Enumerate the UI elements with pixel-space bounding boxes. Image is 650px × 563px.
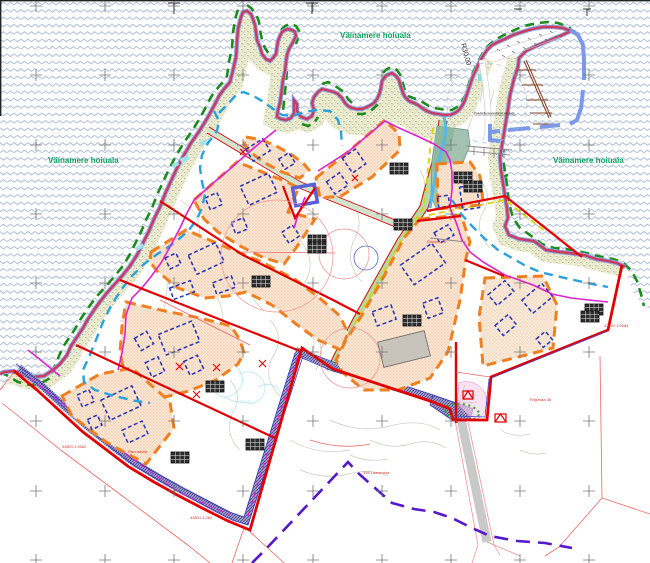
svg-text:Paadisilla kavandatav asukoht: Paadisilla kavandatav asukoht <box>474 111 515 115</box>
svg-text:43801:1:283: 43801:1:283 <box>190 515 213 520</box>
svg-text:Väinamere hoiuala: Väinamere hoiuala <box>48 156 119 165</box>
svg-text:Väinamere hoiuala: Väinamere hoiuala <box>553 156 624 165</box>
svg-text:398 Laaneotsa: 398 Laaneotsa <box>363 470 390 475</box>
svg-text:43801:1:0284: 43801:1:0284 <box>604 323 629 328</box>
svg-text:43801:1:0062: 43801:1:0062 <box>62 444 87 449</box>
svg-text:Väinamere hoiuala: Väinamere hoiuala <box>340 31 411 40</box>
svg-text:Rannaküla: Rannaküla <box>128 449 148 454</box>
svg-text:Riigimaa 38: Riigimaa 38 <box>530 397 552 402</box>
svg-text:Riigimaa 3: Riigimaa 3 <box>427 239 447 244</box>
